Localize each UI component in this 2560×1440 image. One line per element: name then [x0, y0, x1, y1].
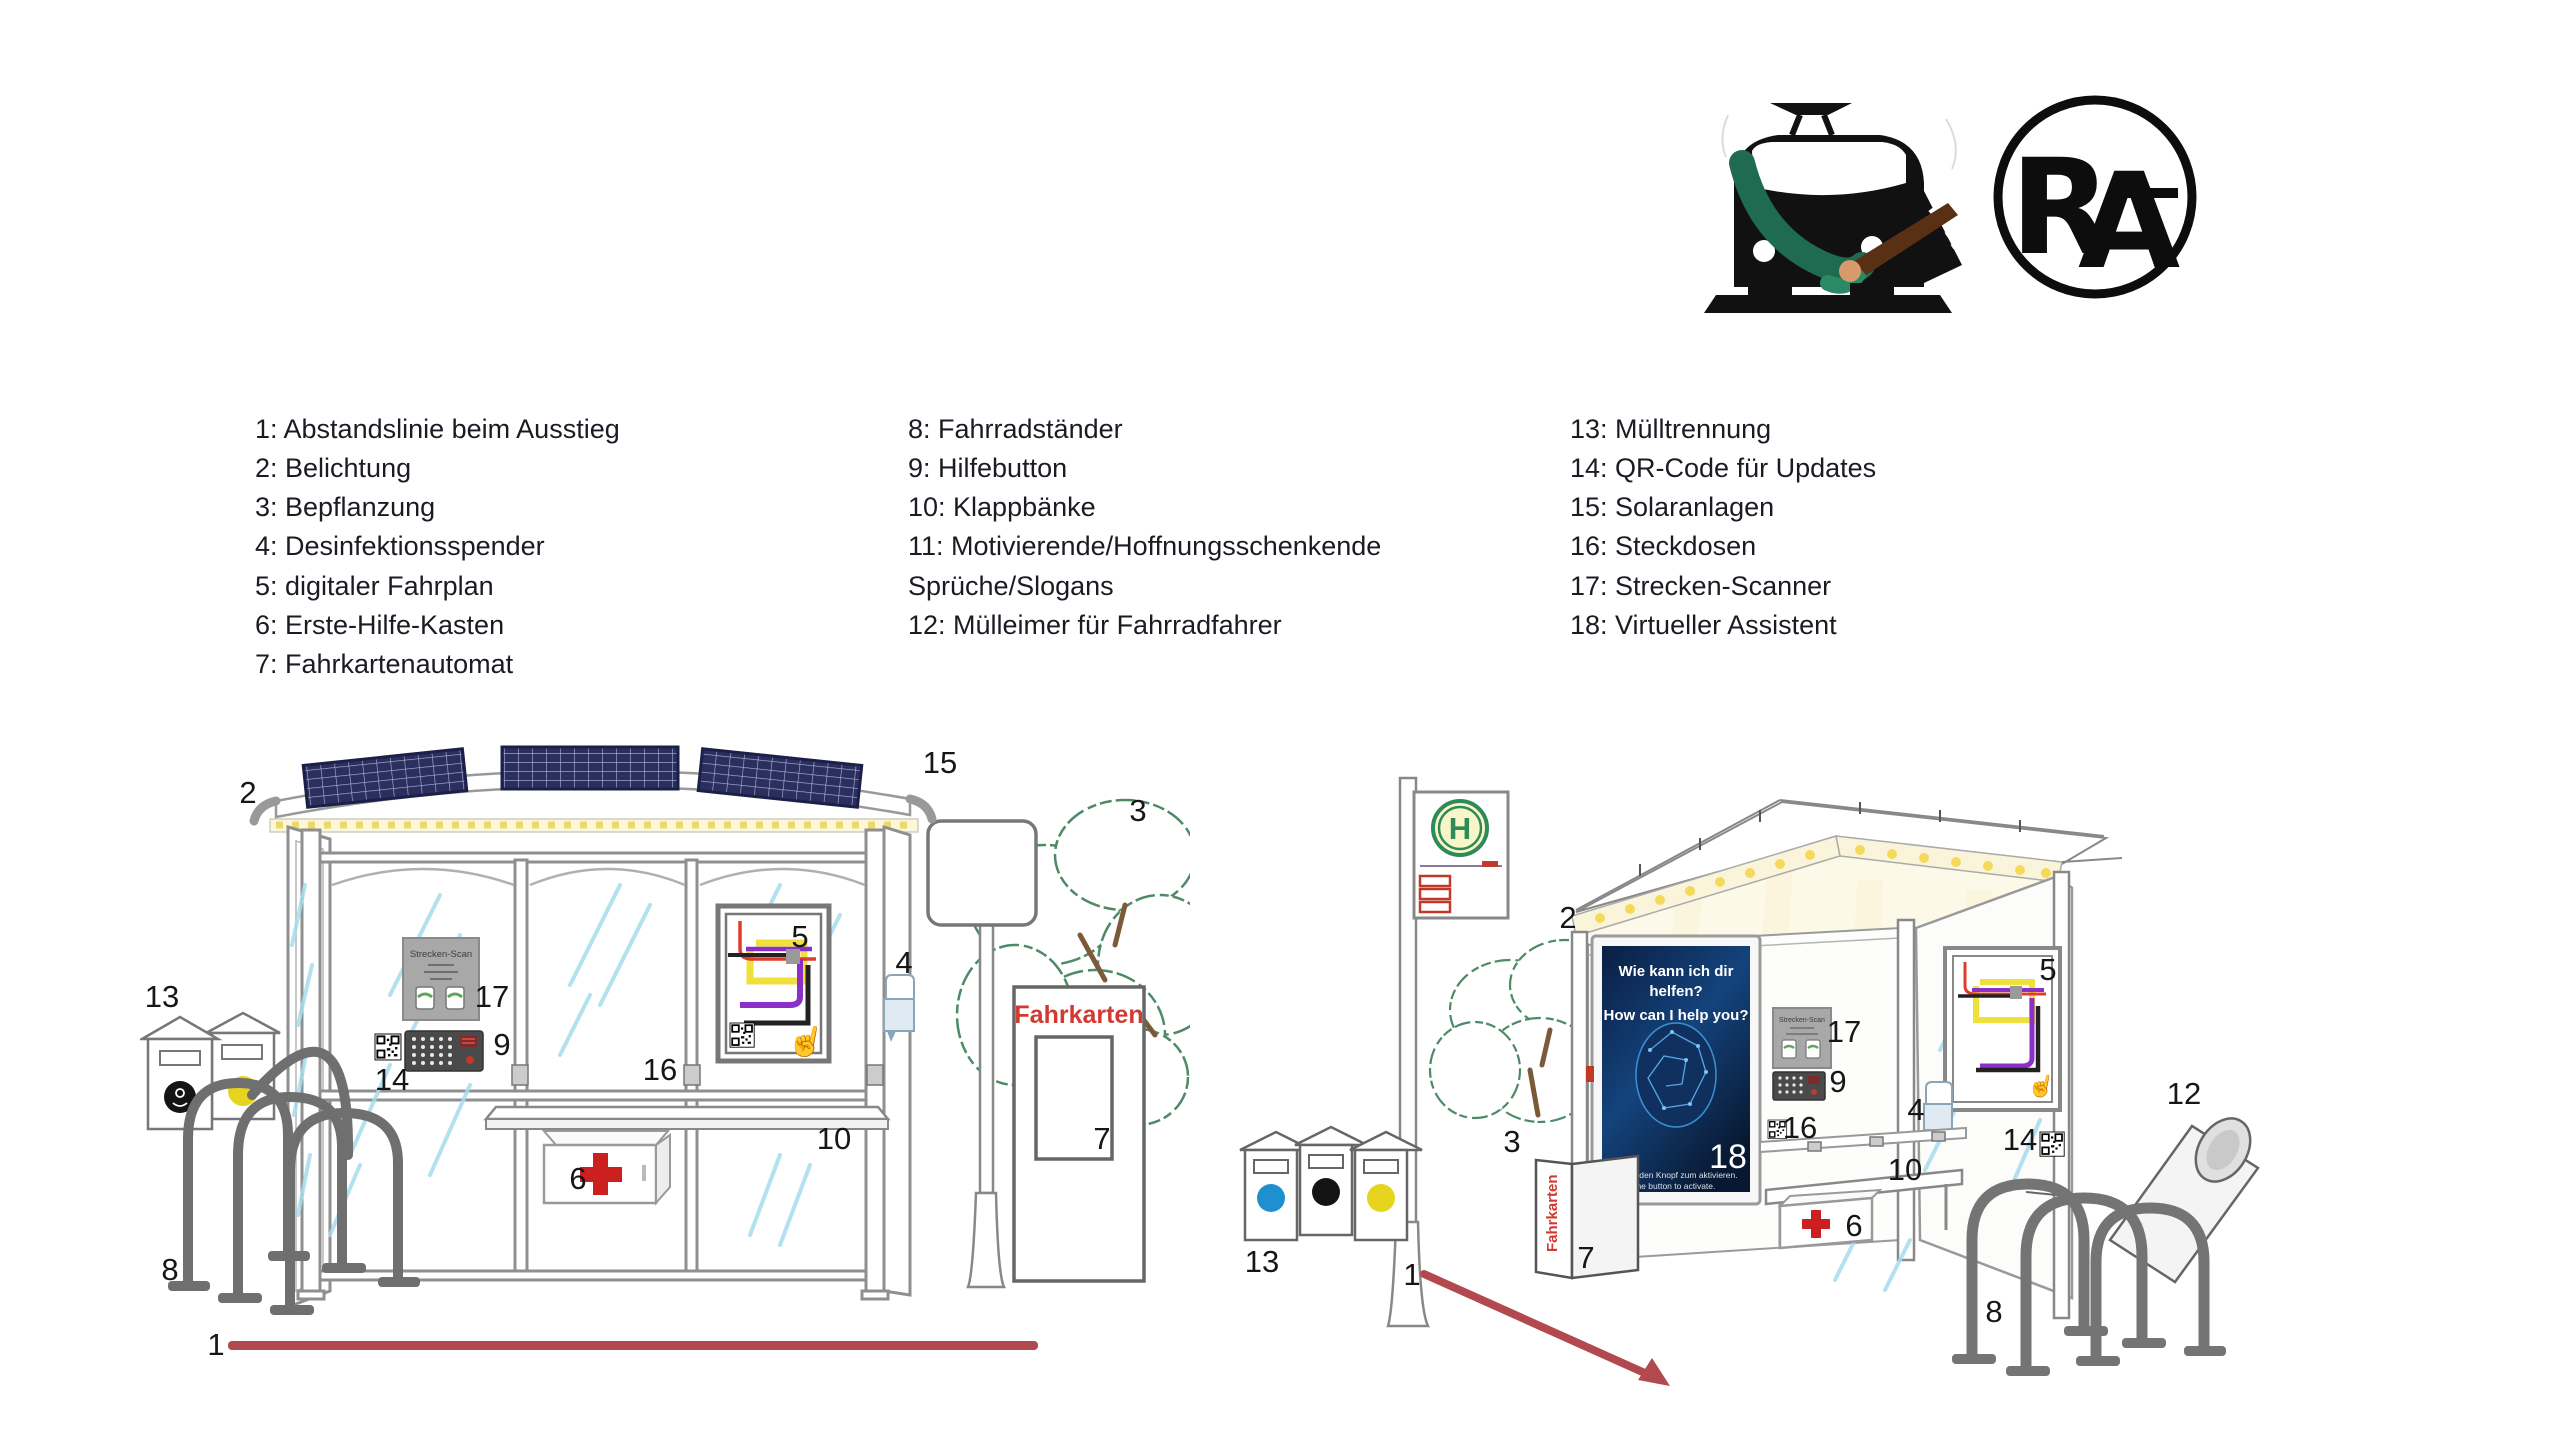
qr-code [375, 1034, 401, 1060]
legend-item: 6: Erste-Hilfe-Kasten [255, 606, 735, 645]
legend-item: 15: Solaranlagen [1570, 488, 1990, 527]
legend-item: 16: Steckdosen [1570, 527, 1990, 566]
marker-5: 5 [791, 919, 808, 955]
marker-8: 8 [1985, 1294, 2002, 1330]
legend-item: 13: Mülltrennung [1570, 410, 1990, 449]
help-button-icon [1811, 1089, 1817, 1095]
marker-13: 13 [1245, 1244, 1279, 1280]
marker-3: 3 [1129, 793, 1146, 829]
blank-sign [928, 821, 1036, 925]
marker-10: 10 [817, 1121, 851, 1157]
marker-4: 4 [895, 945, 912, 981]
digital-fahrplan: ☝ [718, 906, 829, 1063]
qr-code [730, 1023, 754, 1047]
legend-item: 8: Fahrradständer [908, 410, 1468, 449]
marker-15: 15 [923, 745, 957, 781]
marker-9: 9 [1829, 1064, 1846, 1100]
strecken-scan-panel: Strecken-Scan [1773, 1008, 1831, 1068]
waste-bins [142, 1013, 280, 1129]
waste-bins [1240, 1127, 1422, 1240]
marker-6: 6 [1845, 1208, 1862, 1244]
waste-bin [142, 1017, 218, 1129]
hand-sanitizer-dispenser [884, 975, 914, 1042]
marker-5: 5 [2039, 952, 2056, 988]
rag-monogram-logo: R A [1998, 100, 2192, 299]
ticket-machine: Fahrkarten [1014, 987, 1144, 1281]
mid-post [1898, 920, 1914, 1260]
distance-line [228, 1341, 1038, 1350]
help-button-icon [466, 1056, 474, 1064]
marker-6: 6 [569, 1161, 586, 1197]
marker-8: 8 [161, 1252, 178, 1288]
marker-17: 17 [1827, 1014, 1861, 1050]
assistant-button-icon [1586, 1066, 1594, 1082]
power-outlets [512, 1065, 883, 1085]
legend-column-2: 8: Fahrradständer 9: Hilfebutton 10: Kla… [908, 410, 1468, 645]
marker-13: 13 [145, 979, 179, 1015]
legend-item: 11: Motivierende/Hoffnungsschenkende Spr… [908, 527, 1468, 605]
marker-12: 12 [2167, 1076, 2201, 1112]
monogram-letter-a: A [2078, 145, 2180, 299]
right-glass-wall [884, 827, 910, 1295]
legend-column-1: 1: Abstandslinie beim Ausstieg 2: Belich… [255, 410, 735, 684]
legend-item: 10: Klappbänke [908, 488, 1468, 527]
marker-14: 14 [2003, 1122, 2037, 1158]
legend-item: 14: QR-Code für Updates [1570, 449, 1990, 488]
legend-item: 5: digitaler Fahrplan [255, 567, 735, 606]
fahrkarten-label: Fahrkarten [1014, 1001, 1143, 1029]
marker-2: 2 [1559, 900, 1576, 936]
legend-item: 18: Virtueller Assistent [1570, 606, 1990, 645]
marker-16: 16 [1783, 1110, 1817, 1146]
right-post [866, 830, 884, 1295]
first-aid-box [544, 1131, 670, 1203]
strecken-scan-panel: Strecken-Scan [403, 938, 479, 1020]
legend-item: 4: Desinfektionsspender [255, 527, 735, 566]
marker-10: 10 [1888, 1152, 1922, 1188]
pantograph-icon [1770, 103, 1852, 115]
fahrkarten-label: Fahrkarten [1544, 1174, 1561, 1252]
help-keypad [1773, 1072, 1825, 1100]
train-base [1704, 295, 1952, 313]
distance-arrow [1424, 1274, 1670, 1386]
logo-area: R A [1700, 55, 2260, 335]
h-sign-letter: H [1449, 811, 1471, 846]
legend-column-3: 13: Mülltrennung 14: QR-Code für Updates… [1570, 410, 1990, 645]
legend-item: 7: Fahrkartenautomat [255, 645, 735, 684]
yellow-waste-icon [1367, 1184, 1395, 1212]
right-shelter-scene: H Wie [1220, 770, 2300, 1410]
marker-1: 1 [207, 1327, 224, 1363]
qr-code [2040, 1132, 2064, 1156]
blue-waste-icon [1257, 1184, 1285, 1212]
legend-item: 2: Belichtung [255, 449, 735, 488]
assistant-question-en: How can I help you? [1603, 1007, 1748, 1024]
legend-item: 3: Bepflanzung [255, 488, 735, 527]
left-shelter-scene: Fahrkarten [140, 735, 1190, 1400]
marker-14: 14 [375, 1062, 409, 1098]
bike-rack-feet [1952, 1326, 2226, 1376]
help-keypad [405, 1031, 483, 1071]
legend-item: 12: Mülleimer für Fahrradfahrer [908, 606, 1468, 645]
strecken-scan-label: Strecken-Scan [410, 949, 472, 960]
strecken-scan-label: Strecken-Scan [1779, 1017, 1825, 1024]
shelter-roof [254, 747, 932, 832]
black-waste-icon [1312, 1178, 1340, 1206]
marker-16: 16 [643, 1052, 677, 1088]
marker-1: 1 [1403, 1257, 1420, 1293]
windshield [1752, 142, 1906, 195]
track-icon [1924, 191, 1962, 283]
assistant-question-de-1: Wie kann ich dir [1619, 963, 1734, 980]
marker-4: 4 [1907, 1092, 1924, 1128]
marker-7: 7 [1093, 1121, 1110, 1157]
marker-17: 17 [475, 979, 509, 1015]
assistant-question-de-2: helfen? [1649, 983, 1702, 1000]
marker-2: 2 [239, 775, 256, 811]
train-paintbrush-logo [1704, 103, 1964, 313]
legend-item: 17: Strecken-Scanner [1570, 567, 1990, 606]
marker-9: 9 [493, 1027, 510, 1063]
legend-item: 1: Abstandslinie beim Ausstieg [255, 410, 735, 449]
solar-panel [303, 747, 862, 807]
legend-item: 9: Hilfebutton [908, 449, 1468, 488]
marker-3: 3 [1503, 1124, 1520, 1160]
first-aid-box [1780, 1190, 1880, 1248]
top-rail [320, 853, 866, 862]
marker-7: 7 [1577, 1240, 1594, 1276]
